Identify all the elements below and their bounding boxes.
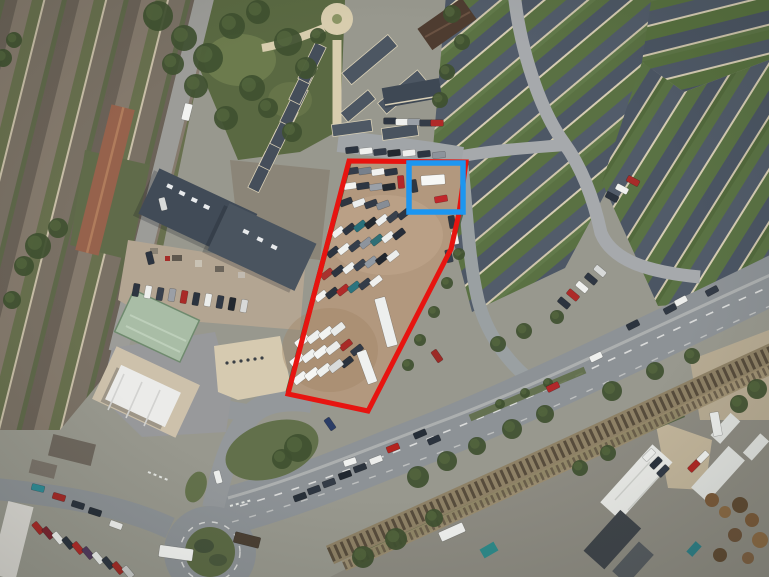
screenshot-root [0, 0, 769, 577]
satellite-imagery [0, 0, 769, 577]
photo-vignette [0, 0, 769, 577]
